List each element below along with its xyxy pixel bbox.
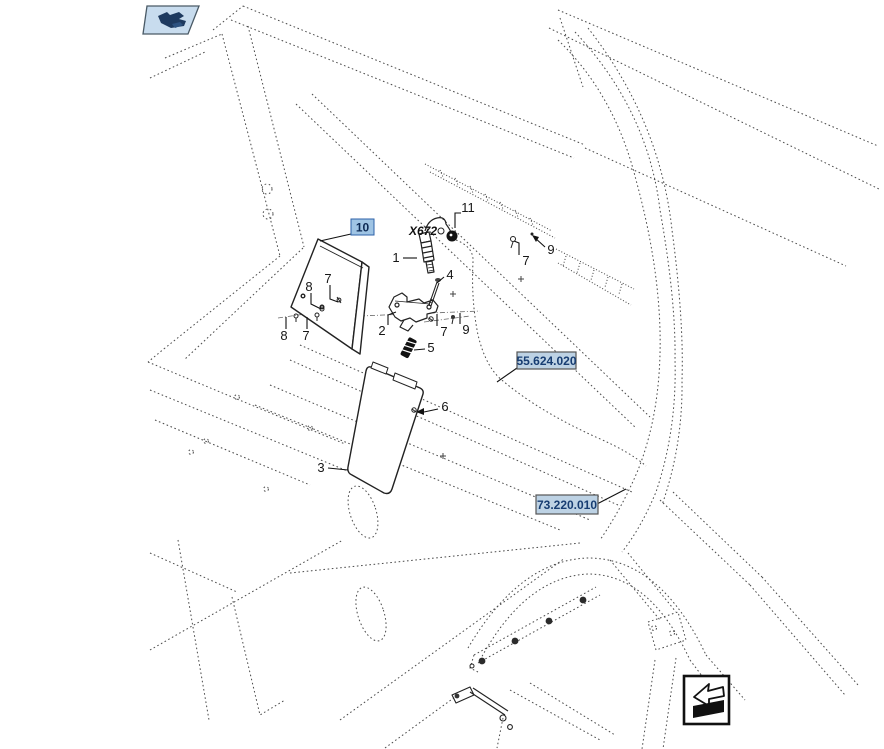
callout-6: 6 [441,399,448,414]
callout-3: 3 [317,460,324,475]
prev-page-button[interactable] [143,6,199,34]
callout-5: 5 [427,340,434,355]
ref-box-55-624-020[interactable]: 55.624.020 [516,352,576,369]
ref-box-10-label: 10 [356,221,370,235]
callout-9d: 9 [547,242,554,257]
callout-7b: 7 [302,328,309,343]
callout-4: 4 [446,267,453,282]
featured-parts [291,218,586,730]
ref-box-55-label: 55.624.020 [516,354,576,368]
callout-8b: 8 [280,328,287,343]
callout-11: 11 [461,200,475,215]
connector-label: X672 [408,224,437,238]
callout-8a: 8 [305,279,312,294]
cab-frame-lines [148,6,881,749]
part-cover-panel [348,362,423,494]
ref-box-73-label: 73.220.010 [537,498,597,512]
callout-2: 2 [378,323,385,338]
fender-bolts [470,597,586,668]
callout-7a: 7 [324,271,331,286]
diagram-canvas: 1 2 3 4 5 6 7 8 8 7 7 9 7 9 11 X672 10 5… [0,0,884,749]
lower-linkage [452,687,512,729]
callout-7d: 7 [522,253,529,268]
parts-diagram-page: 1 2 3 4 5 6 7 8 8 7 7 9 7 9 11 X672 10 5… [0,0,884,749]
part-grommet [438,228,458,242]
callout-9c: 9 [462,322,469,337]
part-spring [399,336,418,359]
ref-box-10[interactable]: 10 [351,219,374,235]
callout-7c: 7 [440,324,447,339]
callout-1: 1 [392,250,399,265]
ref-box-73-220-010[interactable]: 73.220.010 [536,495,598,514]
return-button[interactable] [684,676,729,724]
